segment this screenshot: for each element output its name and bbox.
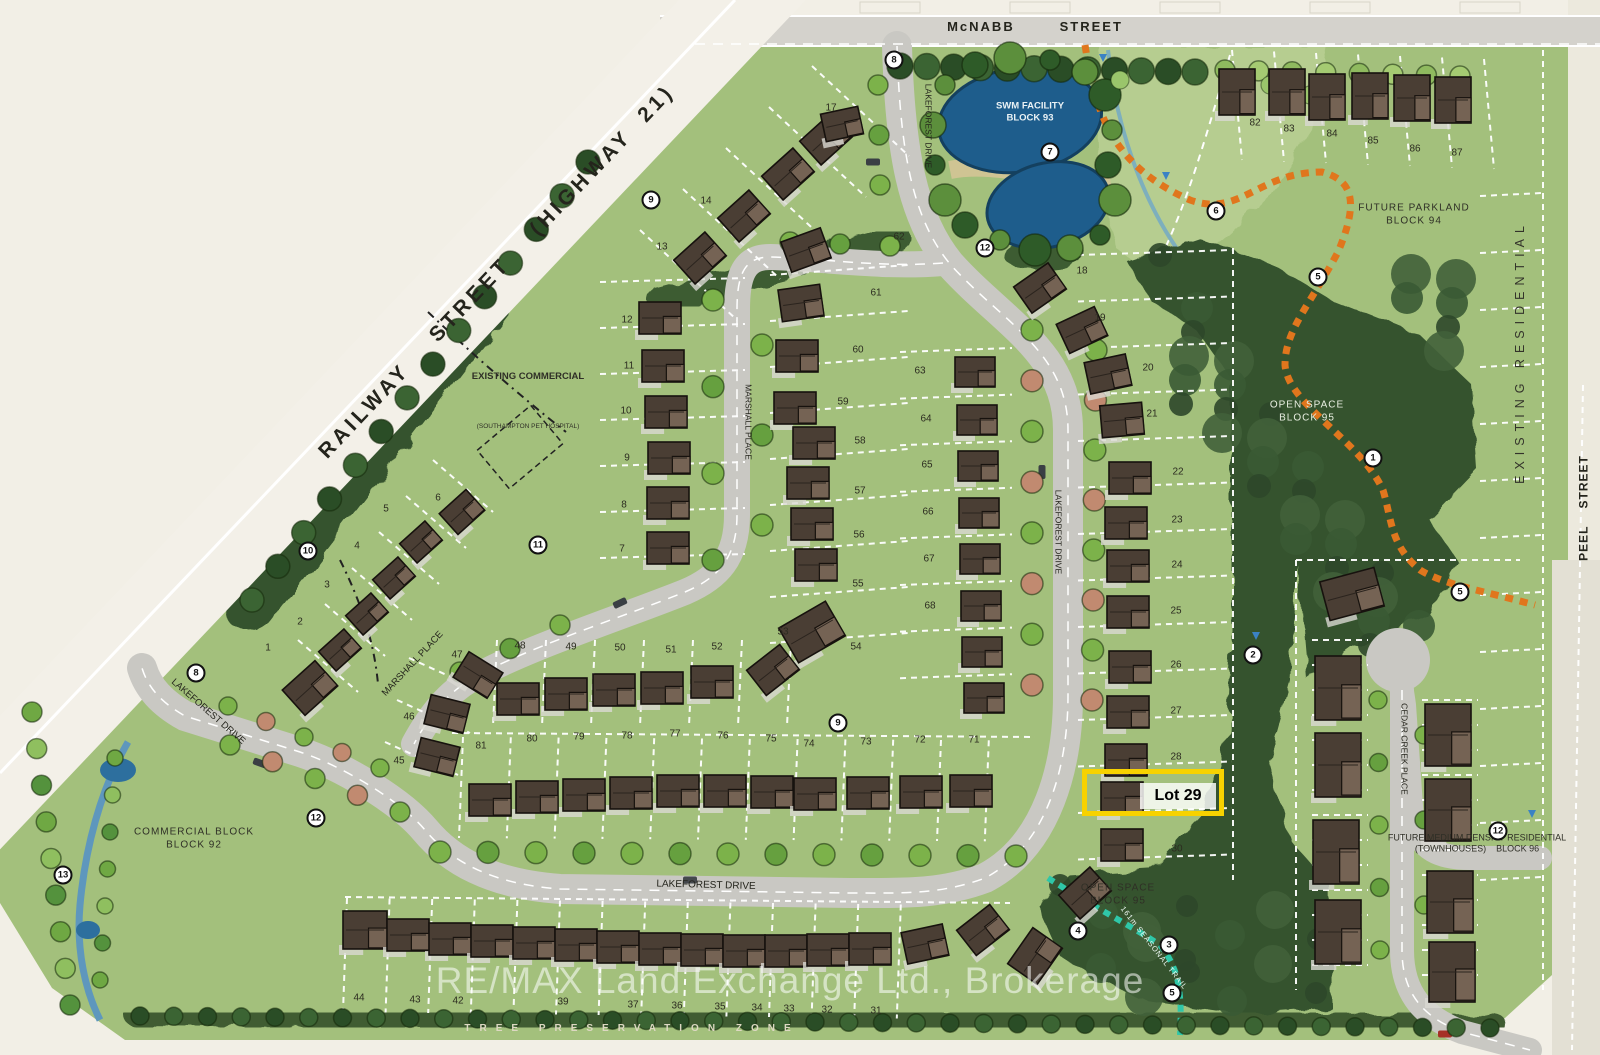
street-label-lakeforest-east: LAKEFOREST DRIVE [1053,490,1064,574]
lot-29-highlight: Lot 29 [1082,769,1224,816]
label-open-space-lower: OPEN SPACEBLOCK 95 [1081,858,1155,933]
lot-number: 82 [1249,118,1260,129]
lot-number: 11 [624,361,634,372]
lot-number: 68 [924,601,935,612]
lot-number: 36 [671,1001,682,1012]
lot-number: 47 [451,650,462,661]
lot-number: 86 [1409,144,1420,155]
lot-number: 73 [860,737,871,748]
label-future-parkland: FUTURE PARKLANDBLOCK 94 [1358,178,1470,253]
lot-number: 56 [853,530,864,541]
street-label-lakeforest-south: LAKEFOREST DRIVE [656,878,756,893]
lot-number: 25 [1170,606,1181,617]
lot-number: 27 [1170,706,1181,717]
lot-number: 52 [711,642,722,653]
lot-number: 14 [700,196,711,207]
lot-number: 87 [1451,148,1462,159]
lot-number: 33 [783,1004,794,1015]
street-label-marshall-vertical: MARSHALL PLACE [743,384,754,460]
lot-number: 81 [475,741,486,752]
lot-29-label: Lot 29 [1140,783,1216,809]
label-swm-facility: SWM FACILITYBLOCK 93 [996,76,1064,147]
label-open-space-upper: OPEN SPACEBLOCK 95 [1270,375,1344,450]
lot-number: 66 [922,507,933,518]
lot-number: 46 [403,712,414,723]
legend-marker: 4 [1069,922,1088,941]
lot-number: 77 [669,729,680,740]
legend-marker: 8 [187,664,206,683]
lot-number: 7 [619,544,625,555]
lot-number: 20 [1142,363,1153,374]
lot-number: 44 [353,993,364,1004]
lot-number: 60 [852,345,863,356]
lot-number: 55 [852,579,863,590]
legend-marker: 12 [1489,822,1508,841]
lot-number: 3 [324,580,330,591]
lot-number: 2 [297,617,303,628]
legend-marker: 8 [885,51,904,70]
street-label-lakeforest-entrance: LAKEFOREST DRIVE [923,84,934,168]
lot-number: 21 [1146,409,1157,420]
lot-number: 5 [383,504,389,515]
lot-number: 72 [914,735,925,746]
legend-marker: 13 [54,866,73,885]
lot-number: 59 [837,397,848,408]
lot-number: 26 [1170,660,1181,671]
lot-number: 67 [923,554,934,565]
label-existing-commercial: EXISTING COMMERCIAL (SOUTHAMPTON PET HOS… [472,331,584,471]
legend-marker: 9 [829,714,848,733]
lot-number: 8 [621,500,627,511]
lot-number: 54 [850,642,861,653]
label-existing-residential: EXISTING RESIDENTIAL [1513,220,1529,484]
lot-number: 79 [573,732,584,743]
legend-marker: 12 [976,239,995,258]
lot-number: 75 [765,734,776,745]
lot-number: 43 [409,995,420,1006]
street-label-cedar-creek: CEDAR CREEK PLACE [1399,703,1410,795]
lot-number: 50 [614,643,625,654]
lot-number: 74 [803,739,814,750]
lot-number: 31 [870,1006,881,1017]
street-label-peel: PEEL STREET [1577,455,1592,561]
legend-marker: 2 [1244,646,1263,665]
lot-number: 45 [393,756,404,767]
lot-number: 85 [1367,136,1378,147]
legend-marker: 5 [1451,583,1470,602]
lot-number: 71 [968,735,979,746]
lot-number: 78 [621,731,632,742]
lot-number: 57 [854,486,865,497]
lot-number: 9 [624,453,630,464]
lot-number: 6 [435,493,441,504]
legend-marker: 9 [642,191,661,210]
lot-number: 84 [1326,129,1337,140]
lot-number: 24 [1171,560,1182,571]
lot-number: 12 [621,315,632,326]
lot-number: 61 [870,288,881,299]
legend-marker: 1 [1364,449,1383,468]
lot-number: 23 [1171,515,1182,526]
legend-marker: 12 [307,809,326,828]
lot-number: 58 [854,436,865,447]
lot-number: 76 [717,731,728,742]
lot-number: 17 [825,103,836,114]
lot-number: 4 [354,541,360,552]
lot-number: 65 [921,460,932,471]
legend-marker: 7 [1041,143,1060,162]
lot-number: 32 [821,1005,832,1016]
lot-number: 10 [620,406,631,417]
label-medium-density: FUTURE MEDIUM DENSITY RESIDENTIAL(TOWNHO… [1388,809,1566,877]
lot-number: 1 [265,643,271,654]
lot-number: 83 [1283,124,1294,135]
lot-number: 22 [1172,467,1183,478]
lot-number: 62 [893,232,904,243]
site-plan-map: McNABB STREET RAILWAY STREET (HIGHWAY 21… [0,0,1600,1055]
lot-number: 64 [920,414,931,425]
label-tree-preservation-zone: TREE PRESERVATION ZONE [464,1023,799,1036]
lot-number: 18 [1076,266,1087,277]
label-commercial-block: COMMERCIAL BLOCKBLOCK 92 [134,802,254,877]
map-graphics [0,0,1600,1055]
lot-number: 13 [656,242,667,253]
legend-marker: 11 [529,536,548,555]
lot-number: 30 [1171,844,1182,855]
legend-marker: 3 [1160,936,1179,955]
lot-number: 51 [665,645,676,656]
lot-number: 34 [751,1003,762,1014]
watermark: RE/MAX Land Exchange Ltd., Brokerage [436,960,1145,1002]
legend-marker: 10 [299,542,318,561]
lot-number: 35 [714,1002,725,1013]
lot-number: 19 [1094,313,1105,324]
lot-number: 28 [1170,752,1181,763]
lot-number: 49 [565,642,576,653]
lot-number: 48 [514,641,525,652]
lot-number: 53 [777,627,788,638]
lot-number: 63 [914,366,925,377]
legend-marker: 5 [1163,984,1182,1003]
legend-marker: 5 [1309,268,1328,287]
legend-marker: 6 [1207,202,1226,221]
street-label-mcnabb: McNABB STREET [947,19,1123,35]
lot-number: 80 [526,734,537,745]
